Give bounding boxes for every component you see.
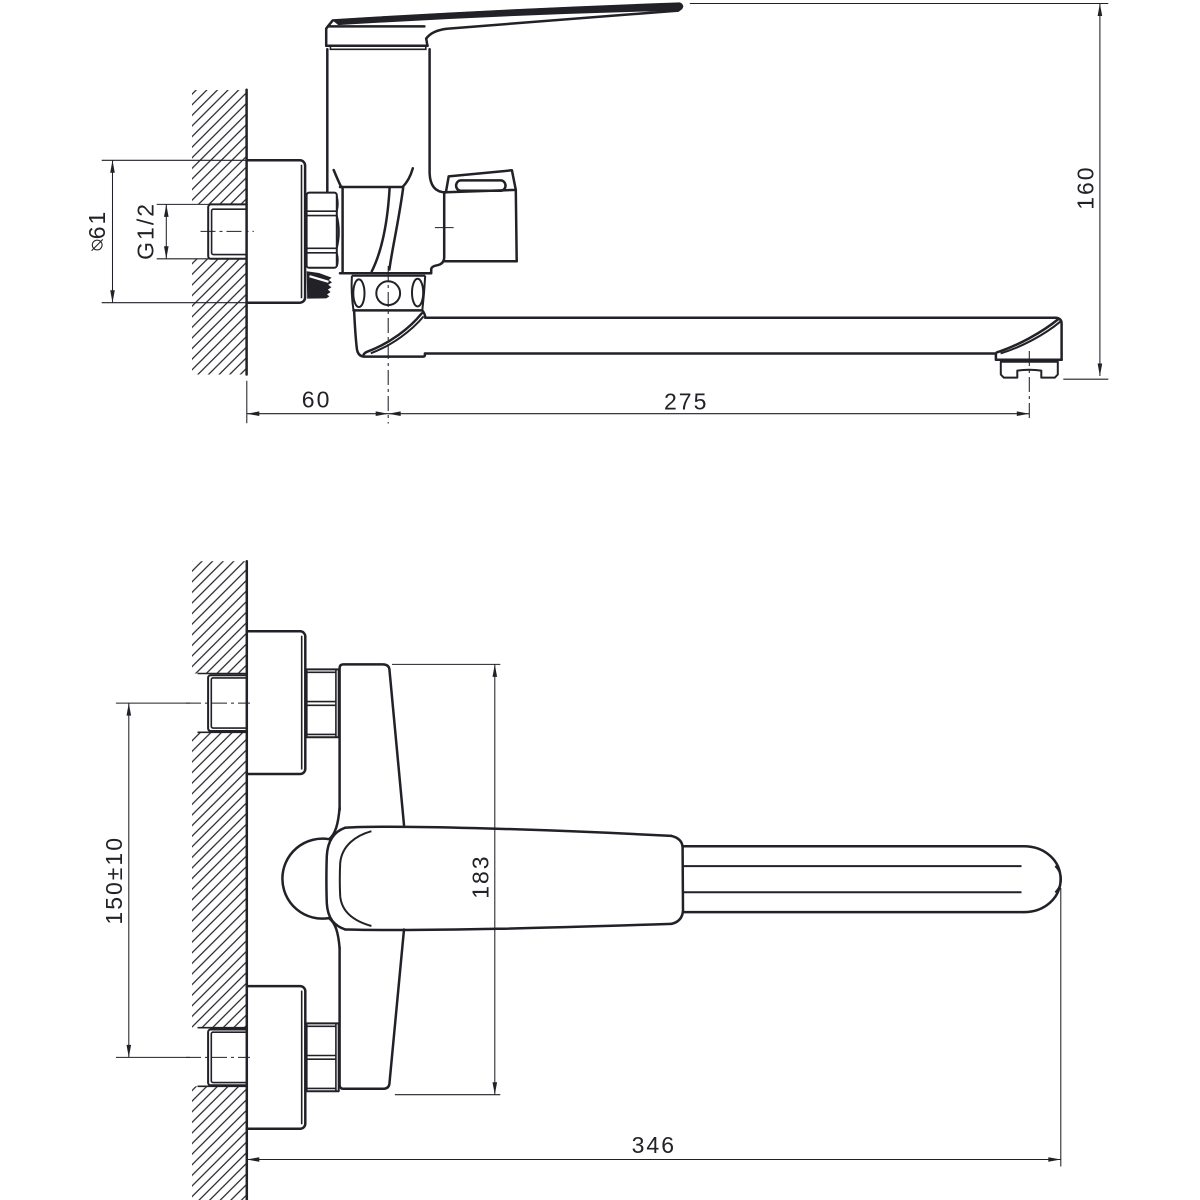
svg-text:160: 160 bbox=[1072, 165, 1098, 209]
svg-text:183: 183 bbox=[467, 854, 493, 898]
svg-text:60: 60 bbox=[302, 386, 332, 412]
svg-text:G1/2: G1/2 bbox=[132, 202, 158, 260]
svg-text:61: 61 bbox=[84, 210, 110, 240]
svg-text:346: 346 bbox=[632, 1132, 676, 1158]
svg-text:275: 275 bbox=[664, 389, 708, 415]
svg-text:150±10: 150±10 bbox=[101, 836, 127, 925]
